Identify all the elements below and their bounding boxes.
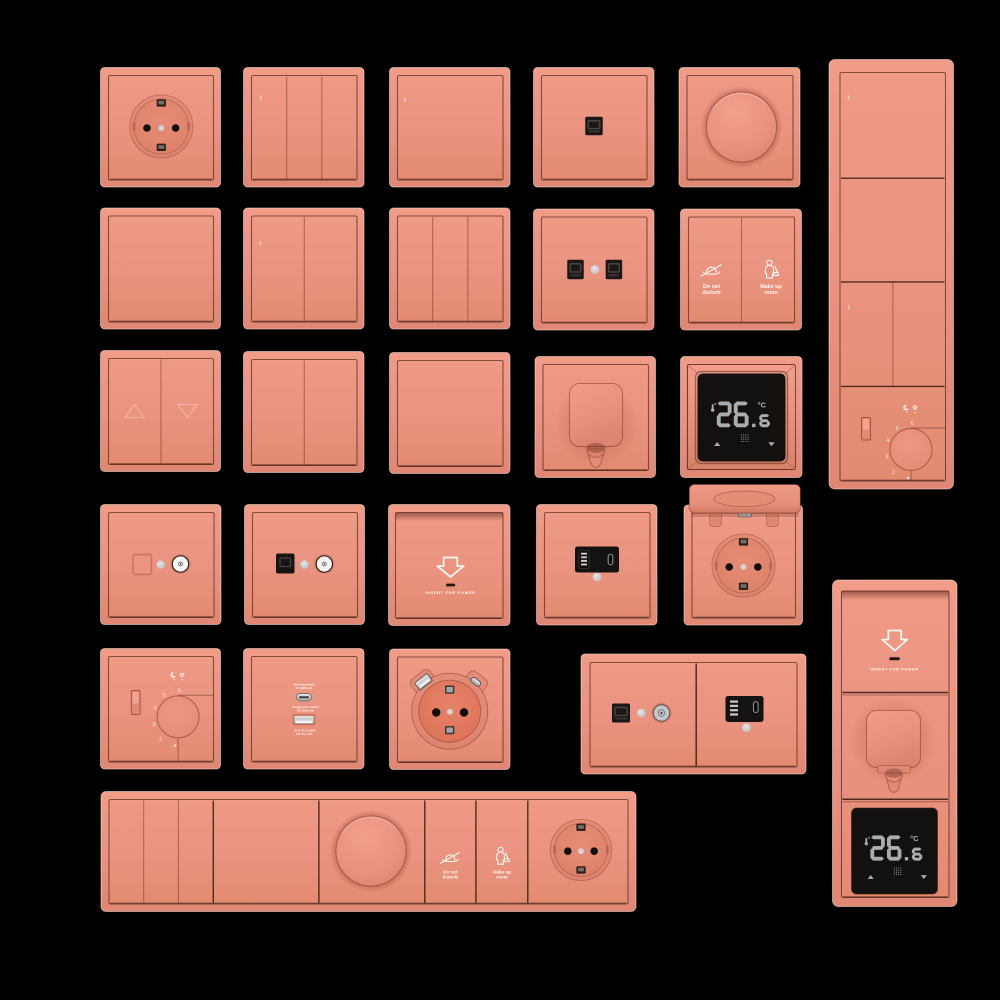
svg-text:°C: °C [910, 834, 919, 843]
svg-text:3: 3 [152, 722, 155, 728]
svg-text:room: room [764, 290, 778, 296]
svg-text:5V 2000 mA: 5V 2000 mA [297, 709, 315, 713]
svg-text:6: 6 [178, 689, 181, 695]
svg-text:disturb: disturb [443, 875, 459, 880]
svg-text:room: room [496, 875, 507, 880]
svg-text:5V 3000 mA: 5V 3000 mA [296, 686, 314, 690]
svg-text:2: 2 [892, 470, 895, 476]
svg-text:DC 5V 1.5A: DC 5V 1.5A [296, 732, 313, 736]
svg-text:5: 5 [163, 693, 166, 699]
svg-text:6: 6 [911, 421, 914, 427]
svg-text:disturb: disturb [702, 290, 721, 296]
svg-text:2: 2 [159, 737, 162, 743]
svg-text:4: 4 [886, 438, 889, 444]
svg-text:°C: °C [758, 401, 767, 410]
svg-text:INSERT FOR POWER: INSERT FOR POWER [871, 667, 919, 671]
svg-text:3: 3 [885, 455, 888, 461]
svg-text:5: 5 [896, 426, 899, 432]
svg-text:4: 4 [153, 706, 156, 712]
svg-text:INSERT FOR POWER: INSERT FOR POWER [425, 590, 476, 595]
